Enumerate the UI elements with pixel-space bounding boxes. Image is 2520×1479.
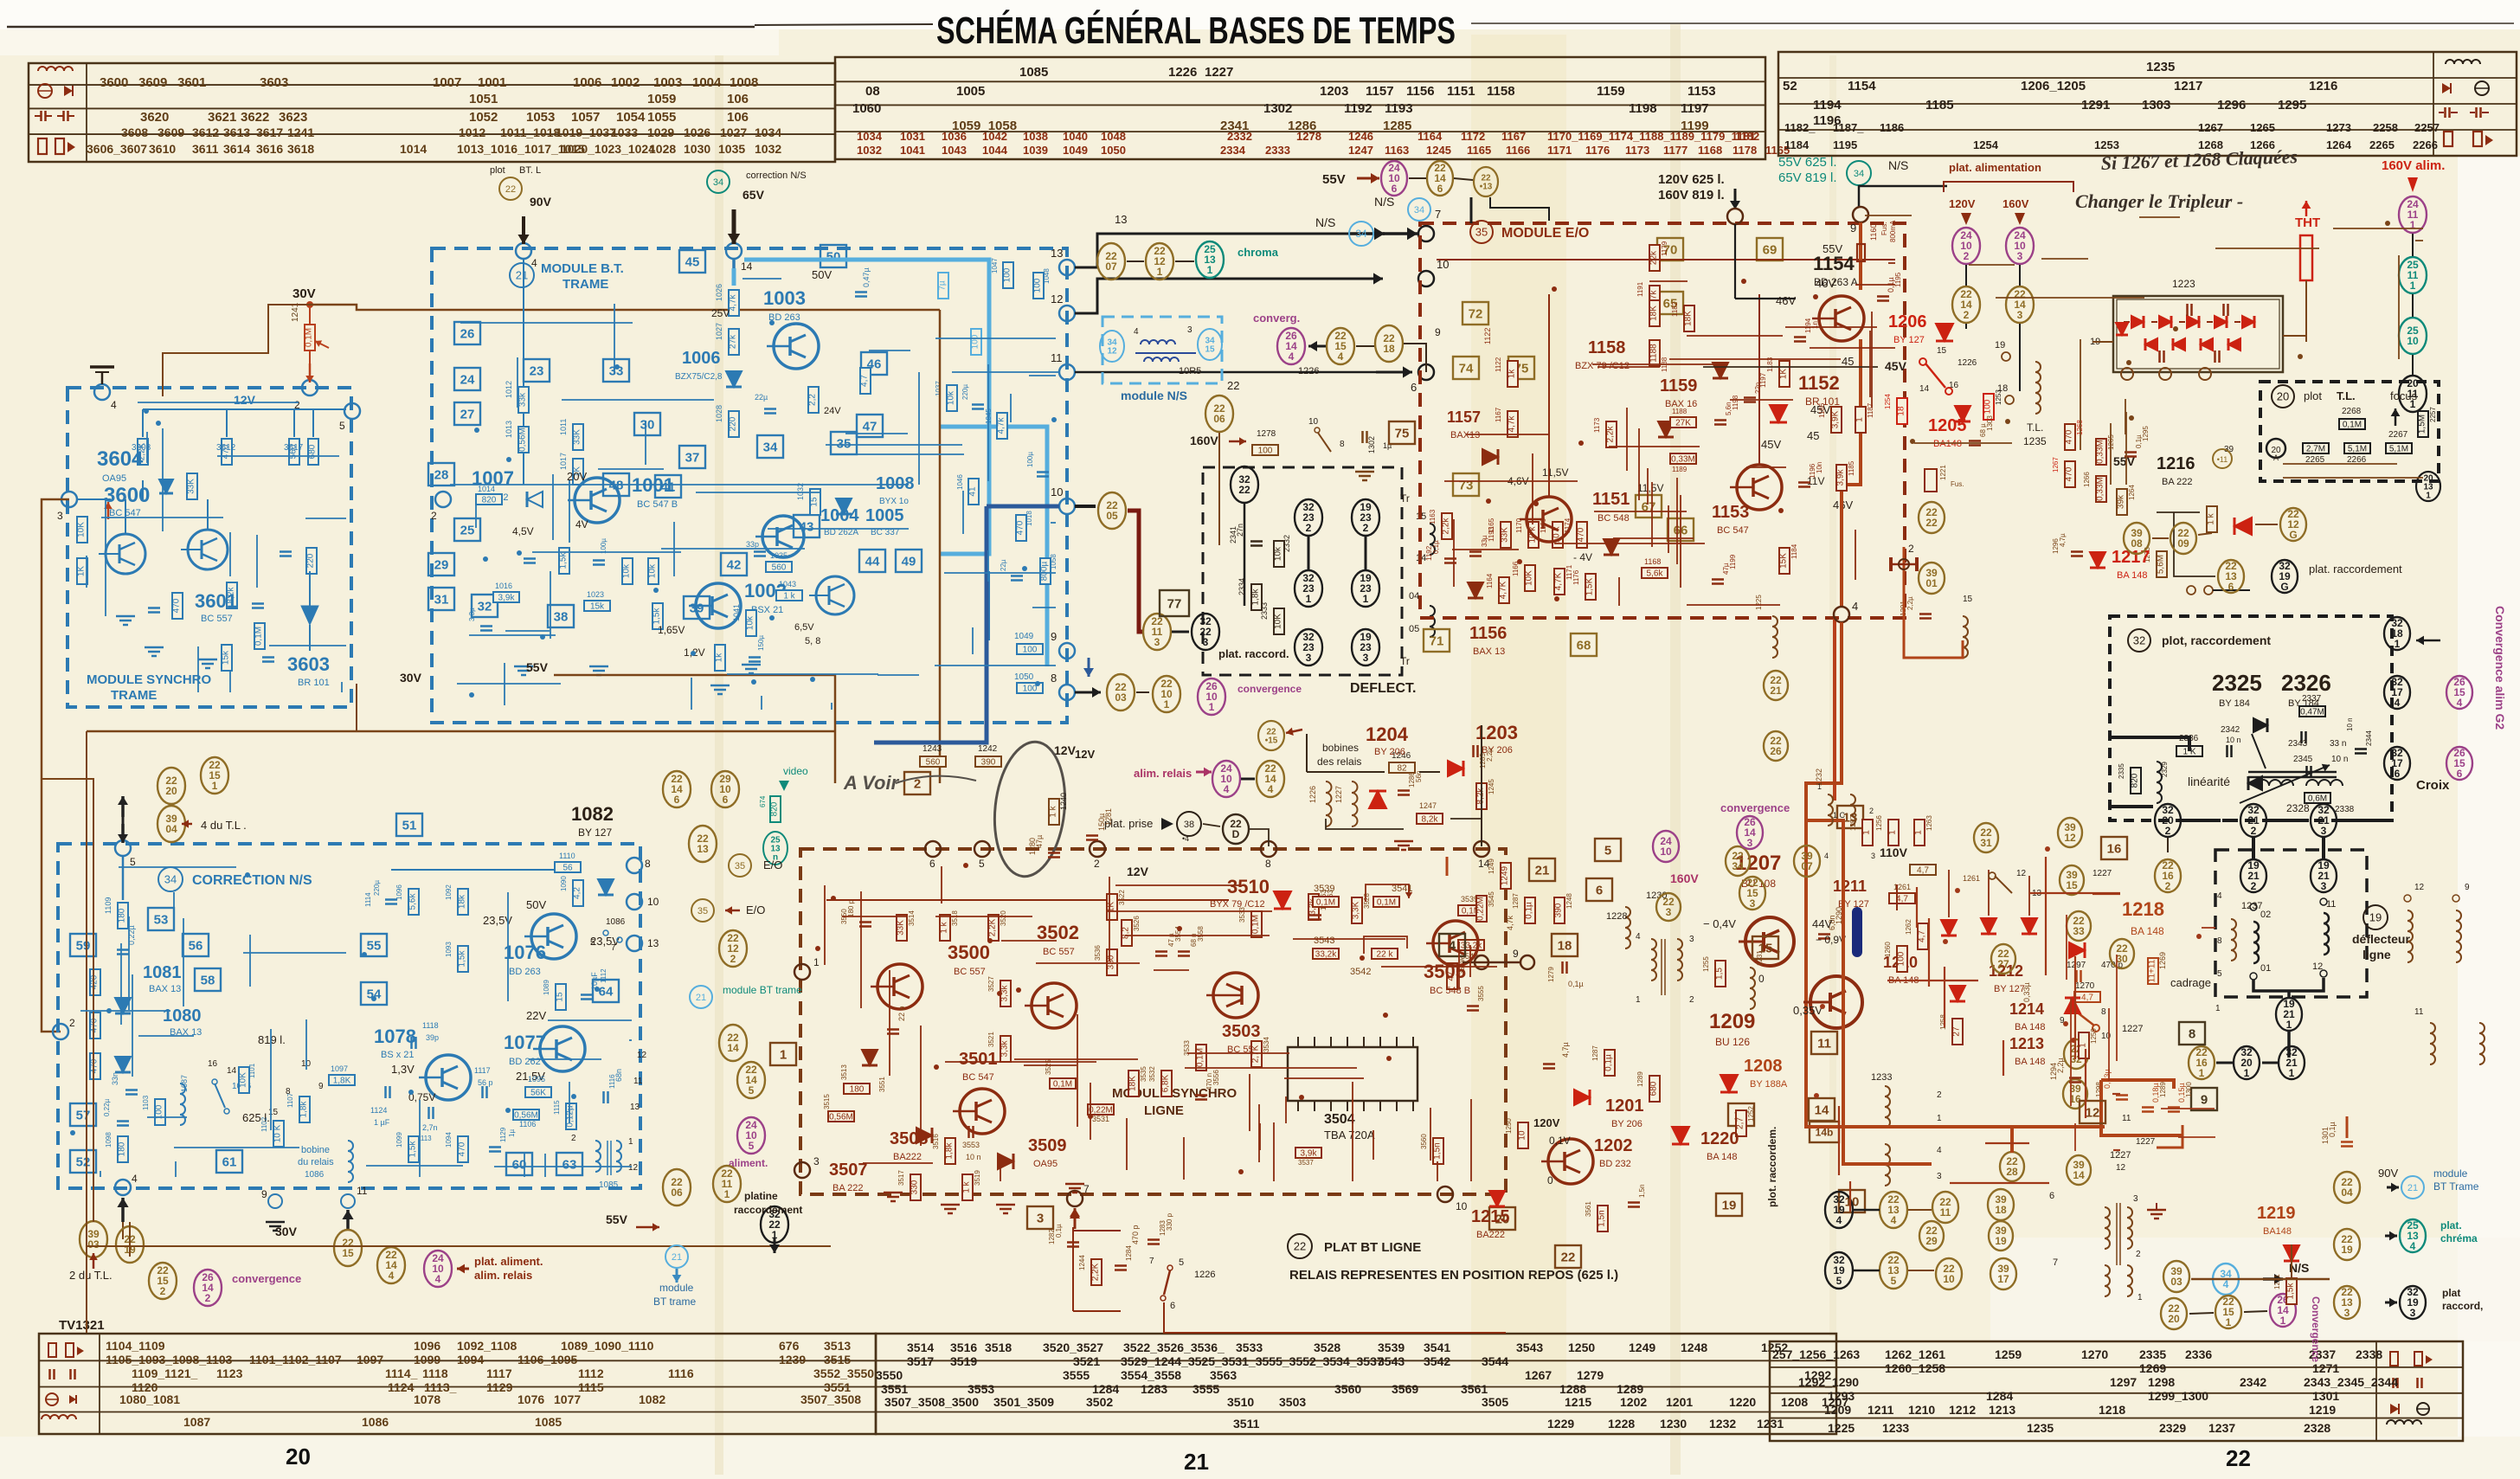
svg-text:1259: 1259 [2090,1028,2098,1044]
svg-text:1: 1 [1862,830,1872,835]
svg-text:2,7n: 2,7n [422,1123,438,1132]
svg-text:3503: 3503 [1279,1395,1306,1409]
svg-text:BA 148: BA 148 [2015,1022,2045,1032]
svg-text:2,2µ: 2,2µ [1906,596,1914,610]
svg-text:10 n: 10 n [966,1153,981,1161]
svg-text:1µ: 1µ [1383,441,1392,450]
svg-text:1270: 1270 [2075,981,2095,991]
svg-text:1227: 1227 [2136,1137,2156,1147]
svg-text:3513: 3513 [824,1339,851,1353]
svg-text:33p: 33p [746,540,759,549]
svg-text:20: 20 [2168,1313,2180,1325]
svg-text:1: 1 [1914,830,1924,835]
svg-text:1K: 1K [1779,369,1789,380]
svg-text:video: video [783,765,808,777]
svg-text:28: 28 [434,467,449,482]
svg-text:8: 8 [286,1087,291,1096]
svg-text:5: 5 [2217,969,2222,979]
svg-text:56K: 56K [530,1089,546,1098]
svg-text:1092_1108: 1092_1108 [457,1339,517,1353]
svg-text:44V: 44V [1812,917,1832,930]
svg-text:0: 0 [1547,1174,1553,1186]
svg-text:1294: 1294 [2049,1063,2058,1080]
svg-text:6,8K: 6,8K [1161,1074,1171,1092]
svg-text:linéarité: linéarité [2188,775,2230,788]
svg-text:1012: 1012 [459,125,485,139]
svg-text:1193: 1193 [1385,101,1413,116]
svg-text:1173: 1173 [1625,144,1649,157]
svg-text:10 n: 10 n [2331,755,2348,764]
svg-text:1249: 1249 [1488,858,1495,874]
svg-text:0,33M: 0,33M [2096,477,2105,501]
svg-text:5: 5 [130,856,136,868]
svg-text:raccord,: raccord, [2442,1300,2483,1312]
svg-text:6: 6 [723,794,729,806]
svg-text:1004: 1004 [692,75,722,90]
svg-text:1076: 1076 [517,1392,544,1406]
svg-text:57: 57 [76,1108,91,1122]
svg-text:1: 1 [2410,219,2416,231]
svg-text:BT. L: BT. L [519,165,541,176]
svg-text:34: 34 [713,177,723,188]
svg-text:14: 14 [1919,384,1930,394]
svg-text:01: 01 [1925,577,1938,589]
svg-text:1003: 1003 [653,75,682,90]
svg-text:1: 1 [1855,417,1865,422]
svg-text:1156: 1156 [1469,624,1507,643]
svg-text:4: 4 [1449,938,1456,953]
svg-text:3610: 3610 [149,142,176,156]
svg-text:1k: 1k [715,653,724,663]
svg-text:21: 21 [1770,685,1782,697]
svg-text:1221: 1221 [1939,465,1947,480]
svg-text:3609: 3609 [157,125,184,139]
svg-text:3536: 3536 [1094,945,1102,961]
svg-text:4,7µ: 4,7µ [2059,533,2067,547]
svg-text:4: 4 [1224,783,1230,795]
svg-text:1011_1018: 1011_1018 [500,125,561,139]
svg-text:1185: 1185 [1925,98,1954,113]
svg-text:9: 9 [261,1188,267,1200]
svg-text:470: 470 [458,1141,467,1156]
svg-text:1202: 1202 [1594,1136,1633,1155]
svg-text:1: 1 [2410,280,2416,292]
svg-text:220: 220 [729,416,738,431]
svg-text:1: 1 [1636,995,1641,1005]
svg-text:1194: 1194 [1813,98,1842,113]
svg-text:N/S: N/S [1315,215,1335,229]
svg-text:2326: 2326 [2281,670,2331,696]
svg-text:35: 35 [1475,226,1488,239]
svg-text:convergence: convergence [1237,683,1302,695]
svg-text:1106_1095: 1106_1095 [517,1353,578,1366]
svg-text:10: 10 [1660,846,1672,858]
svg-text:1122: 1122 [1495,357,1502,372]
svg-text:22: 22 [1294,1240,1306,1253]
svg-text:1118: 1118 [422,1366,448,1380]
svg-text:1112: 1112 [578,1366,604,1380]
svg-text:1254: 1254 [1884,394,1892,409]
svg-text:1033: 1033 [611,125,638,139]
svg-text:bobine: bobine [301,1145,330,1155]
svg-text:4 du T.L .: 4 du T.L . [201,819,247,832]
svg-text:1243: 1243 [922,744,942,754]
svg-text:44: 44 [865,554,880,569]
svg-text:0,56M: 0,56M [514,1111,538,1121]
svg-text:1218: 1218 [2122,898,2164,920]
svg-text:30V: 30V [292,286,316,301]
svg-text:1202: 1202 [1620,1395,1647,1409]
svg-text:13: 13 [1115,213,1127,226]
svg-text:55V: 55V [1322,172,1346,187]
svg-text:0,1µ: 0,1µ [1568,980,1584,988]
svg-text:18K: 18K [1684,311,1694,326]
svg-text:2333: 2333 [1260,602,1269,620]
svg-text:1271: 1271 [2312,1361,2339,1375]
svg-text:50V: 50V [526,898,546,911]
svg-text:12: 12 [2414,883,2425,892]
svg-text:2333: 2333 [1265,144,1290,157]
svg-text:160V: 160V [1190,434,1218,447]
svg-text:45: 45 [1807,429,1819,442]
svg-text:0,12µ: 0,12µ [566,1105,575,1127]
svg-text:1,5K: 1,5K [1585,577,1595,595]
svg-text:TRAME: TRAME [562,277,608,292]
svg-text:BY 188A: BY 188A [1750,1079,1788,1090]
svg-text:2,2µ: 2,2µ [1486,748,1494,762]
svg-text:1039: 1039 [1023,144,1048,157]
svg-text:20: 20 [2277,390,2289,403]
svg-text:1041: 1041 [732,604,741,621]
svg-text:1235: 1235 [2023,435,2047,447]
svg-text:converg.: converg. [1253,312,1300,325]
svg-text:1: 1 [1207,264,1213,276]
svg-text:6: 6 [1437,183,1443,195]
svg-text:32: 32 [478,599,492,614]
svg-text:3500: 3500 [948,942,990,963]
svg-text:19: 19 [1995,1235,2007,1247]
svg-text:33 n: 33 n [2330,739,2346,749]
svg-text:33K: 33K [573,429,582,445]
svg-text:3617: 3617 [284,443,304,453]
svg-text:100: 100 [1023,646,1038,655]
svg-text:1164: 1164 [1486,573,1494,588]
svg-text:49: 49 [902,554,916,569]
svg-text:14: 14 [741,260,753,273]
svg-text:1216: 1216 [2157,454,2195,473]
svg-text:3,9k: 3,9k [1301,1149,1318,1159]
svg-text:29: 29 [1925,1235,1938,1247]
svg-text:2: 2 [1689,995,1694,1005]
svg-text:15: 15 [1205,345,1215,355]
svg-text:1209: 1209 [1709,1010,1755,1033]
svg-text:1103: 1103 [142,1095,150,1110]
svg-text:1,65V: 1,65V [658,624,685,636]
svg-text:1032: 1032 [857,144,882,157]
svg-text:26: 26 [1770,745,1782,757]
svg-text:1184: 1184 [1784,138,1810,151]
svg-text:3510: 3510 [1227,1395,1254,1409]
svg-text:BA148: BA148 [1933,439,1962,449]
svg-text:2: 2 [1937,1090,1942,1100]
svg-text:1176: 1176 [1585,144,1610,157]
svg-text:11,5V: 11,5V [1542,466,1568,479]
svg-text:106: 106 [727,92,749,106]
svg-text:A: A [2273,453,2279,462]
svg-text:1223: 1223 [2172,278,2195,290]
svg-text:180 p: 180 p [847,899,855,917]
svg-text:34: 34 [1732,860,1744,872]
svg-text:1230: 1230 [1660,1417,1687,1431]
svg-text:390: 390 [1554,903,1564,917]
svg-text:12: 12 [628,1163,639,1173]
svg-text:1227: 1227 [2110,1150,2131,1161]
svg-text:3,3µ: 3,3µ [468,608,476,621]
svg-text:11: 11 [633,1077,643,1086]
svg-text:1018: 1018 [1025,511,1033,526]
svg-text:1256: 1256 [1875,815,1883,831]
svg-text:1201: 1201 [1666,1395,1693,1409]
svg-text:1078: 1078 [414,1392,440,1406]
svg-text:100: 100 [1033,278,1043,293]
svg-text:13: 13 [647,937,659,949]
svg-text:BY 127: BY 127 [1994,984,2025,994]
svg-text:1157: 1157 [1447,408,1481,426]
svg-text:BY 206: BY 206 [1611,1119,1642,1129]
svg-text:10: 10 [647,896,659,908]
svg-text:0,47µ: 0,47µ [862,267,871,287]
svg-text:1: 1 [2215,1004,2221,1013]
svg-text:1198: 1198 [1732,395,1739,410]
svg-text:3: 3 [1154,636,1160,648]
svg-text:6: 6 [2457,768,2463,780]
svg-text:1258: 1258 [1939,1014,1947,1030]
svg-text:1208: 1208 [1744,1057,1783,1076]
svg-text:1270: 1270 [2081,1347,2108,1361]
svg-text:2: 2 [1363,522,1369,534]
svg-text:27: 27 [1952,1026,1962,1037]
svg-text:6,5V: 6,5V [794,622,814,633]
svg-text:1101: 1101 [248,1063,256,1078]
svg-text:674: 674 [759,795,767,807]
svg-text:LIGNE: LIGNE [1144,1103,1184,1118]
svg-text:1: 1 [1363,593,1369,605]
svg-text:20: 20 [286,1444,311,1469]
svg-text:1106: 1106 [519,1120,536,1129]
svg-text:3620: 3620 [140,110,169,125]
svg-text:1086: 1086 [362,1415,389,1429]
svg-text:14: 14 [2073,1169,2085,1181]
svg-text:470: 470 [1016,520,1025,535]
svg-text:20: 20 [165,785,177,797]
svg-text:61: 61 [222,1154,237,1169]
svg-text:220µ: 220µ [961,384,969,400]
svg-text:1280: 1280 [1028,838,1037,855]
svg-text:1292_1290: 1292_1290 [1798,1375,1859,1389]
svg-text:3509: 3509 [1028,1136,1067,1155]
svg-text:1047: 1047 [991,258,999,273]
svg-text:2268: 2268 [2342,407,2362,416]
svg-text:3514: 3514 [907,1341,934,1354]
svg-text:1254: 1254 [1973,138,1999,151]
svg-text:3553: 3553 [962,1141,980,1149]
svg-text:3622: 3622 [241,110,269,125]
svg-text:1210: 1210 [1908,1403,1935,1417]
svg-text:BD 232: BD 232 [1599,1159,1631,1169]
svg-text:1 C: 1 C [1833,811,1846,820]
svg-text:3515: 3515 [823,1094,831,1109]
svg-text:11: 11 [2414,1007,2424,1017]
svg-text:BAX 13: BAX 13 [149,984,181,994]
svg-text:3513: 3513 [840,1064,848,1080]
svg-text:BC 547: BC 547 [1717,525,1749,536]
svg-text:68n: 68n [614,1069,623,1082]
svg-text:correction N/S: correction N/S [746,170,807,181]
svg-text:1109_1121_: 1109_1121_ [132,1366,198,1380]
svg-text:3519: 3519 [950,1354,977,1368]
svg-text:1262: 1262 [1905,919,1912,935]
svg-text:1284: 1284 [1125,1245,1133,1261]
svg-text:470: 470 [1577,527,1586,542]
svg-text:1026: 1026 [715,284,723,301]
svg-text:03: 03 [2170,1276,2182,1288]
svg-text:22: 22 [2226,1445,2251,1471]
svg-text:1226: 1226 [1957,358,1977,368]
svg-text:1096: 1096 [414,1339,440,1353]
svg-text:06: 06 [1213,413,1225,425]
svg-text:21: 21 [1535,863,1550,878]
svg-text:0,1M: 0,1M [1053,1080,1072,1090]
svg-text:3: 3 [1747,837,1753,849]
svg-text:1037: 1037 [935,381,942,396]
svg-text:BY 184: BY 184 [2219,698,2250,709]
svg-text:1116: 1116 [668,1366,694,1380]
svg-text:33,2k: 33,2k [1315,950,1337,960]
svg-text:3: 3 [2410,1307,2416,1319]
svg-text:1273: 1273 [2326,121,2351,134]
svg-text:25V: 25V [711,307,730,319]
svg-text:1014: 1014 [478,485,495,493]
svg-text:7µ: 7µ [938,280,948,291]
svg-text:3623: 3623 [279,110,307,125]
svg-text:34: 34 [164,873,177,886]
svg-text:47: 47 [863,419,877,434]
svg-text:11: 11 [1940,1206,1951,1219]
svg-text:12: 12 [2116,1163,2126,1173]
svg-text:1043: 1043 [942,144,967,157]
svg-text:1267: 1267 [2198,121,2223,134]
svg-text:1233: 1233 [1871,1072,1892,1083]
svg-text:3,3k: 3,3k [1000,1040,1010,1058]
svg-text:65V: 65V [742,188,765,202]
svg-text:1003: 1003 [763,287,806,309]
svg-text:1099: 1099 [395,1132,403,1148]
svg-text:1239: 1239 [779,1353,806,1366]
svg-text:3527: 3527 [987,976,995,992]
svg-text:3539: 3539 [1378,1341,1405,1354]
svg-text:3516: 3516 [950,1341,977,1354]
svg-text:1289: 1289 [1617,1382,1643,1396]
svg-text:10K: 10K [239,1072,248,1088]
svg-text:14: 14 [1815,1103,1829,1117]
svg-text:1118: 1118 [422,1021,439,1030]
svg-text:1 k: 1 k [783,592,795,601]
svg-text:4: 4 [531,257,537,269]
svg-text:1285: 1285 [1383,119,1411,133]
svg-text:2265: 2265 [2369,138,2395,151]
svg-text:1227: 1227 [1334,786,1343,803]
svg-text:1,8k: 1,8k [945,1142,955,1160]
svg-text:plot, raccordement: plot, raccordement [2162,633,2271,647]
svg-text:4,7: 4,7 [1918,930,1927,942]
svg-text:4,7: 4,7 [1896,895,1908,904]
svg-text:1117: 1117 [474,1066,491,1075]
svg-text:1247: 1247 [1419,801,1437,810]
svg-text:1031: 1031 [900,130,925,143]
svg-text:1192: 1192 [1344,101,1372,116]
svg-text:1167: 1167 [1501,130,1526,143]
svg-text:1099: 1099 [414,1353,440,1366]
svg-text:220: 220 [306,553,316,568]
svg-text:3: 3 [2017,250,2023,262]
svg-text:0,6M: 0,6M [2308,794,2327,804]
svg-text:1213: 1213 [1989,1403,2015,1417]
svg-text:2343: 2343 [2288,739,2308,749]
svg-text:6: 6 [929,858,935,870]
svg-text:1038: 1038 [1023,130,1048,143]
svg-text:1263: 1263 [1925,815,1933,831]
svg-text:BA222: BA222 [893,1152,922,1162]
svg-text:10: 10 [1456,1200,1468,1212]
svg-text:820: 820 [482,496,497,505]
svg-text:3603: 3603 [260,75,288,90]
svg-text:BU 126: BU 126 [1715,1036,1750,1048]
svg-text:03: 03 [1115,691,1127,704]
svg-text:2257: 2257 [2429,407,2437,422]
svg-text:1086: 1086 [606,917,626,927]
svg-text:TV1321: TV1321 [59,1318,105,1333]
svg-text:2: 2 [1908,543,1914,555]
svg-text:07: 07 [1801,860,1813,872]
svg-text:focus: focus [2390,389,2418,402]
svg-text:2: 2 [431,510,437,522]
svg-text:100: 100 [1258,447,1273,456]
svg-text:1204: 1204 [1366,723,1409,745]
svg-text:3518: 3518 [951,910,959,926]
svg-text:BC 557: BC 557 [1043,947,1075,957]
svg-text:12V: 12V [1054,743,1077,757]
svg-text:1173: 1173 [1593,417,1601,433]
svg-text:1187: 1187 [1867,402,1874,418]
svg-text:3616: 3616 [256,142,283,156]
svg-text:1104_1109: 1104_1109 [106,1339,165,1353]
svg-text:BY 127: BY 127 [578,826,612,839]
svg-text:3544: 3544 [1482,1354,1508,1368]
svg-text:5: 5 [1604,843,1611,858]
svg-text:2328: 2328 [2286,802,2310,814]
svg-text:1,5k: 1,5k [2286,1283,2296,1300]
svg-text:1: 1 [2137,1293,2143,1302]
svg-text:3553: 3553 [967,1382,994,1396]
svg-text:2: 2 [2251,880,2257,892]
svg-text:15: 15 [1963,595,1973,604]
svg-text:1: 1 [2395,638,2401,650]
svg-text:6: 6 [2395,768,2401,780]
svg-text:25: 25 [460,523,475,537]
svg-text:BY 127: BY 127 [1893,335,1925,345]
svg-text:1300: 1300 [2185,1082,2193,1097]
svg-text:12: 12 [2086,1105,2100,1120]
